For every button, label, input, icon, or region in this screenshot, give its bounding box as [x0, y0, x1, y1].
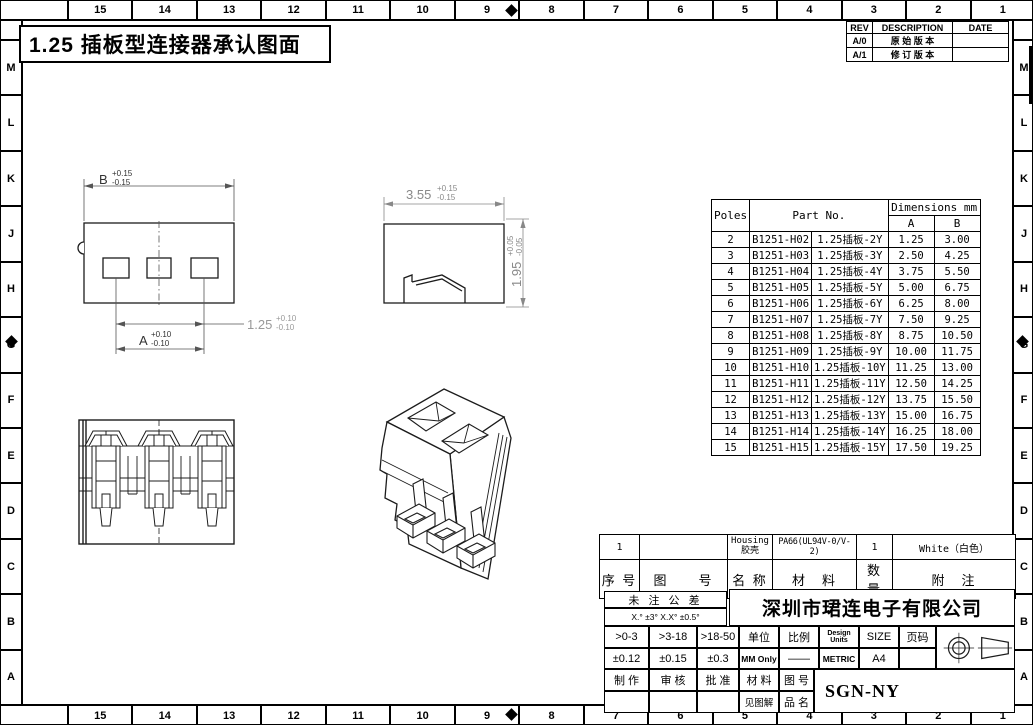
- ruler-cell: E: [1014, 427, 1033, 482]
- parts-row: 5B1251-H051.25插板-5Y5.006.75: [712, 280, 981, 296]
- ruler-cell: 12: [260, 1, 324, 19]
- maker-value: [604, 691, 649, 713]
- dim-front-a-label: A: [139, 333, 148, 348]
- dim-a-value: 15.00: [888, 408, 934, 424]
- parts-header-row-1: Poles Part No. Dimensions mm: [712, 200, 981, 216]
- ruler-cell: 10: [389, 1, 453, 19]
- dim-b-value: 16.75: [934, 408, 980, 424]
- dim-a-header: A: [888, 216, 934, 232]
- ruler-cell: L: [1, 94, 21, 149]
- part-no-value: B1251-H11: [750, 376, 812, 392]
- material-label: 材 料: [739, 669, 779, 691]
- bom-item-row: 1 Housing 胶壳 PA66(UL94V-0/V-2) 1 White（白…: [600, 535, 1016, 560]
- part-no-value: B1251-H02: [750, 232, 812, 248]
- dim-a-value: 13.75: [888, 392, 934, 408]
- tolerance-title: 未 注 公 差: [604, 591, 727, 608]
- part-name-value: 1.25插板-7Y: [812, 312, 889, 328]
- bom-name-cn: 胶壳: [729, 547, 771, 557]
- part-name-value: 1.25插板-10Y: [812, 360, 889, 376]
- bom-drawing-no-value: [640, 535, 728, 560]
- ruler-cell: 15: [67, 1, 131, 19]
- dim-b-value: 8.00: [934, 296, 980, 312]
- revision-row: A/1修 订 版 本: [847, 48, 1009, 62]
- ruler-cell: K: [1, 150, 21, 205]
- ruler-cell: F: [1, 372, 21, 427]
- dim-b-value: 5.50: [934, 264, 980, 280]
- parts-row: 11B1251-H111.25插板-11Y12.5014.25: [712, 376, 981, 392]
- part-name-value: 1.25插板-9Y: [812, 344, 889, 360]
- side-view-drawing: 3.55 +0.15 -0.15 1.95 +0.05 -0.05: [371, 171, 551, 321]
- parts-row: 14B1251-H141.25插板-14Y16.2518.00: [712, 424, 981, 440]
- ruler-cell: A: [1014, 649, 1033, 704]
- poles-header: Poles: [712, 200, 750, 232]
- dim-b-value: 3.00: [934, 232, 980, 248]
- ruler-cell: 7: [583, 1, 647, 19]
- dim-a-value: 10.00: [888, 344, 934, 360]
- dimensions-header: Dimensions mm: [888, 200, 980, 216]
- ruler-cell: 1: [970, 1, 1033, 19]
- part-name-value: 1.25插板-13Y: [812, 408, 889, 424]
- unit-label: 单位: [739, 626, 779, 648]
- dim-b-header: B: [934, 216, 980, 232]
- checker-label: 审 核: [649, 669, 697, 691]
- page-title: 1.25 插板型连接器承认图面: [19, 25, 331, 63]
- drawing-code: SGN-NY: [814, 669, 1015, 713]
- dim-a-value: 5.00: [888, 280, 934, 296]
- part-name-value: 1.25插板-2Y: [812, 232, 889, 248]
- size-label: SIZE: [859, 626, 899, 648]
- date-value: [953, 34, 1009, 48]
- dim-side-height-label: 1.95: [509, 262, 524, 287]
- page-label: 页码: [899, 626, 936, 648]
- bom-name-value: Housing 胶壳: [728, 535, 773, 560]
- dim-b-value: 14.25: [934, 376, 980, 392]
- part-no-value: B1251-H06: [750, 296, 812, 312]
- ruler-cell: 3: [841, 1, 905, 19]
- part-no-header: Part No.: [750, 200, 888, 232]
- checker-value: [649, 691, 697, 713]
- scale-label: 比例: [779, 626, 819, 648]
- dim-b-value: 6.75: [934, 280, 980, 296]
- parts-row: 15B1251-H151.25插板-15Y17.5019.25: [712, 440, 981, 456]
- part-name-value: 1.25插板-6Y: [812, 296, 889, 312]
- ruler-cell: J: [1, 205, 21, 260]
- parts-row: 8B1251-H081.25插板-8Y8.7510.50: [712, 328, 981, 344]
- dim-side-width-minus: -0.15: [437, 193, 456, 202]
- description-header: DESCRIPTION: [873, 22, 953, 34]
- part-no-value: B1251-H05: [750, 280, 812, 296]
- part-no-value: B1251-H03: [750, 248, 812, 264]
- ruler-cell: B: [1014, 593, 1033, 648]
- dim-b-value: 13.00: [934, 360, 980, 376]
- part-no-value: B1251-H15: [750, 440, 812, 456]
- section-view-drawing: [76, 416, 241, 551]
- parts-row: 7B1251-H071.25插板-7Y7.509.25: [712, 312, 981, 328]
- approver-label: 批 准: [697, 669, 739, 691]
- ruler-cell: H: [1014, 261, 1033, 316]
- drawing-no-label: 图 号: [779, 669, 814, 691]
- ruler-cell: 11: [325, 706, 389, 725]
- rev-header: REV: [847, 22, 873, 34]
- ruler-cell: 4: [776, 1, 840, 19]
- tol-range-3-value: ±0.3: [697, 648, 739, 669]
- tol-range-3-header: >18-50: [697, 626, 739, 648]
- bom-material-value: PA66(UL94V-0/V-2): [773, 535, 857, 560]
- poles-value: 5: [712, 280, 750, 296]
- parts-row: 9B1251-H091.25插板-9Y10.0011.75: [712, 344, 981, 360]
- ruler-cell: H: [1, 261, 21, 316]
- dim-b-value: 18.00: [934, 424, 980, 440]
- ruler-cell: 5: [712, 1, 776, 19]
- ruler-cell: J: [1014, 205, 1033, 260]
- unit-value: MM Only: [739, 648, 779, 669]
- ruler-cell: D: [1, 482, 21, 537]
- bom-seq-value: 1: [600, 535, 640, 560]
- part-no-value: B1251-H07: [750, 312, 812, 328]
- dim-b-value: 10.50: [934, 328, 980, 344]
- approver-value: [697, 691, 739, 713]
- size-value: A4: [859, 648, 899, 669]
- ruler-cell: C: [1014, 538, 1033, 593]
- description-value: 修 订 版 本: [873, 48, 953, 62]
- ruler-cell: M: [1, 39, 21, 94]
- part-name-value: 1.25插板-12Y: [812, 392, 889, 408]
- page-value: [899, 648, 936, 669]
- dim-front-width-label: B: [99, 172, 108, 187]
- ruler-cell: 6: [647, 1, 711, 19]
- ruler-cell: K: [1014, 150, 1033, 205]
- first-angle-projection-icon: [938, 628, 1014, 668]
- ruler-cell: 14: [131, 1, 195, 19]
- ruler-cell: 11: [325, 1, 389, 19]
- dim-a-value: 7.50: [888, 312, 934, 328]
- part-no-value: B1251-H04: [750, 264, 812, 280]
- parts-row: 12B1251-H121.25插板-12Y13.7515.50: [712, 392, 981, 408]
- parts-row: 4B1251-H041.25插板-4Y3.755.50: [712, 264, 981, 280]
- poles-value: 12: [712, 392, 750, 408]
- poles-value: 10: [712, 360, 750, 376]
- poles-value: 2: [712, 232, 750, 248]
- ruler-spacer: [1014, 21, 1033, 39]
- parts-row: 10B1251-H101.25插板-10Y11.2513.00: [712, 360, 981, 376]
- print-mark: [1029, 46, 1033, 104]
- dim-a-value: 3.75: [888, 264, 934, 280]
- part-no-value: B1251-H13: [750, 408, 812, 424]
- part-name-value: 1.25插板-11Y: [812, 376, 889, 392]
- part-name-value: 1.25插板-8Y: [812, 328, 889, 344]
- dim-a-value: 2.50: [888, 248, 934, 264]
- part-name-value: 1.25插板-15Y: [812, 440, 889, 456]
- material-value: 见图解: [739, 691, 779, 713]
- ruler-cell: E: [1, 427, 21, 482]
- poles-value: 15: [712, 440, 750, 456]
- ruler-cell: 15: [67, 706, 131, 725]
- tol-range-1-header: >0-3: [604, 626, 649, 648]
- scale-value: ——: [779, 648, 819, 669]
- ruler-cell: D: [1014, 482, 1033, 537]
- title-block: 未 注 公 差 X.° ±3° X.X° ±0.5° 深圳市珺连电子有限公司 >…: [599, 589, 1015, 713]
- dim-side-height-plus: +0.05: [506, 235, 515, 256]
- dim-a-value: 1.25: [888, 232, 934, 248]
- poles-value: 7: [712, 312, 750, 328]
- dim-b-value: 4.25: [934, 248, 980, 264]
- parts-row: 2B1251-H021.25插板-2Y1.253.00: [712, 232, 981, 248]
- poles-value: 11: [712, 376, 750, 392]
- parts-row: 3B1251-H031.25插板-3Y2.504.25: [712, 248, 981, 264]
- design-units-value: METRIC: [819, 648, 859, 669]
- date-header: DATE: [953, 22, 1009, 34]
- poles-value: 8: [712, 328, 750, 344]
- dim-front-pitch-minus: -0.10: [276, 323, 295, 332]
- dim-front-a-minus: -0.10: [151, 339, 170, 348]
- rev-value: A/1: [847, 48, 873, 62]
- dim-b-value: 19.25: [934, 440, 980, 456]
- part-no-value: B1251-H09: [750, 344, 812, 360]
- description-value: 原 始 版 本: [873, 34, 953, 48]
- dim-a-value: 16.25: [888, 424, 934, 440]
- ruler-cell: 12: [260, 706, 324, 725]
- ruler-spacer: [1, 21, 21, 39]
- projection-symbol: [936, 626, 1015, 669]
- part-name-value: 1.25插板-3Y: [812, 248, 889, 264]
- page-title-text: 1.25 插板型连接器承认图面: [29, 29, 301, 59]
- part-no-value: B1251-H10: [750, 360, 812, 376]
- ruler-cell: B: [1, 593, 21, 648]
- dim-front-width-plus: +0.15: [112, 169, 133, 178]
- ruler-right: MLKJHGFEDCBA: [1012, 21, 1033, 704]
- tol-range-2-header: >3-18: [649, 626, 697, 648]
- ruler-cell: A: [1, 649, 21, 704]
- drawing-sheet: 151413121110987654321 151413121110987654…: [0, 0, 1033, 725]
- dim-b-value: 11.75: [934, 344, 980, 360]
- parts-row: 13B1251-H131.25插板-13Y15.0016.75: [712, 408, 981, 424]
- isometric-view-drawing: [351, 376, 546, 596]
- dim-front-pitch-label: 1.25: [247, 317, 272, 332]
- dim-side-width-plus: +0.15: [437, 184, 458, 193]
- tol-range-2-value: ±0.15: [649, 648, 697, 669]
- part-name-value: 1.25插板-5Y: [812, 280, 889, 296]
- ruler-cell: 8: [518, 706, 582, 725]
- ruler-cell: 13: [196, 1, 260, 19]
- poles-value: 3: [712, 248, 750, 264]
- front-view-drawing: B +0.15 -0.15 1.25 +0.10 -0.10 A +0.10 -…: [61, 151, 311, 371]
- dim-a-value: 8.75: [888, 328, 934, 344]
- maker-label: 制 作: [604, 669, 649, 691]
- bom-note-value: White（白色）: [893, 535, 1016, 560]
- dim-a-value: 12.50: [888, 376, 934, 392]
- part-no-value: B1251-H08: [750, 328, 812, 344]
- poles-value: 14: [712, 424, 750, 440]
- part-no-value: B1251-H14: [750, 424, 812, 440]
- parts-table: Poles Part No. Dimensions mm A B 2B1251-…: [711, 199, 981, 456]
- part-name-value: 1.25插板-14Y: [812, 424, 889, 440]
- tolerance-angles: X.° ±3° X.X° ±0.5°: [604, 608, 727, 626]
- company-name: 深圳市珺连电子有限公司: [729, 589, 1015, 626]
- dim-side-height-minus: -0.05: [515, 237, 524, 256]
- ruler-spacer: [1, 1, 67, 19]
- dim-front-a-plus: +0.10: [151, 330, 172, 339]
- poles-value: 9: [712, 344, 750, 360]
- dim-a-value: 11.25: [888, 360, 934, 376]
- ruler-cell: 8: [518, 1, 582, 19]
- dim-side-width-label: 3.55: [406, 187, 431, 202]
- poles-value: 6: [712, 296, 750, 312]
- ruler-left: MLKJHGFEDCBA: [1, 21, 23, 704]
- dim-b-value: 9.25: [934, 312, 980, 328]
- ruler-cell: 10: [389, 706, 453, 725]
- ruler-cell: 2: [905, 1, 969, 19]
- revision-header-row: REV DESCRIPTION DATE: [847, 22, 1009, 34]
- ruler-cell: C: [1, 538, 21, 593]
- ruler-spacer: [1, 706, 67, 725]
- product-name-label: 品 名: [779, 691, 814, 713]
- bom-qty-value: 1: [857, 535, 893, 560]
- poles-value: 4: [712, 264, 750, 280]
- revision-row: A/0原 始 版 本: [847, 34, 1009, 48]
- rev-value: A/0: [847, 34, 873, 48]
- dim-front-pitch-plus: +0.10: [276, 314, 297, 323]
- dim-b-value: 15.50: [934, 392, 980, 408]
- revision-table: REV DESCRIPTION DATE A/0原 始 版 本A/1修 订 版 …: [846, 21, 1009, 62]
- date-value: [953, 48, 1009, 62]
- ruler-cell: 13: [196, 706, 260, 725]
- part-name-value: 1.25插板-4Y: [812, 264, 889, 280]
- part-no-value: B1251-H12: [750, 392, 812, 408]
- ruler-cell: 14: [131, 706, 195, 725]
- ruler-cell: F: [1014, 372, 1033, 427]
- parts-row: 6B1251-H061.25插板-6Y6.258.00: [712, 296, 981, 312]
- dim-a-value: 17.50: [888, 440, 934, 456]
- poles-value: 13: [712, 408, 750, 424]
- dim-front-width-minus: -0.15: [112, 178, 131, 187]
- tol-range-1-value: ±0.12: [604, 648, 649, 669]
- dim-a-value: 6.25: [888, 296, 934, 312]
- design-units-label: Design Units: [819, 626, 859, 648]
